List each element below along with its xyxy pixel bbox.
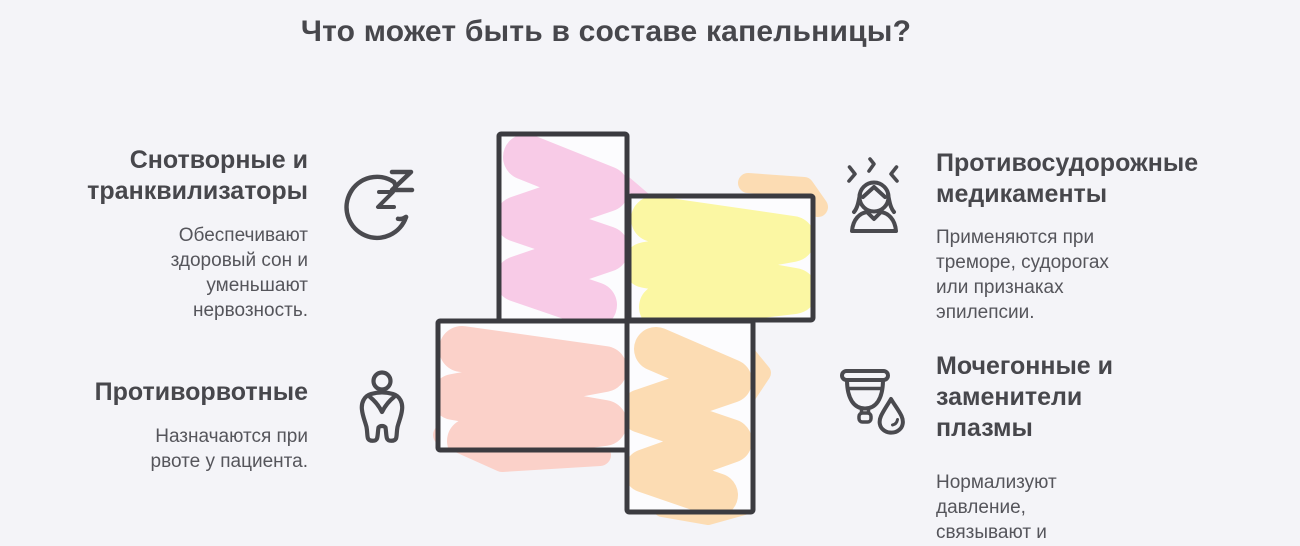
section-sedatives-description: Обеспечивают здоровый сон и уменьшают не…: [148, 223, 308, 323]
page-title: Что может быть в составе капельницы?: [0, 15, 1212, 49]
salmon-block: [438, 321, 629, 450]
section-antiemetics-title: Противорвотные: [58, 377, 308, 408]
tremor-person-icon: [841, 157, 903, 235]
section-anticonvulsants-title: Противосудорожные медикаменты: [936, 148, 1221, 210]
nausea-person-icon: [355, 369, 413, 442]
yellow-block: [629, 196, 813, 320]
section-diuretics-description: Нормализуют давление, связывают и выводя…: [936, 470, 1114, 546]
section-diuretics-title: Мочегонные и заменители плазмы: [936, 351, 1136, 444]
section-antiemetics-description: Назначаются при рвоте у пациента.: [143, 424, 308, 474]
iv-drip-cross-graphic: [410, 103, 830, 523]
infographic-canvas: Что может быть в составе капельницы? Сно…: [0, 0, 1300, 546]
pink-block: [499, 134, 627, 321]
peach-block: [627, 321, 753, 512]
cup-drop-icon: [839, 363, 907, 435]
section-sedatives-title: Снотворные и транквилизаторы: [58, 145, 308, 207]
section-anticonvulsants-description: Применяются при треморе, судорогах или п…: [936, 225, 1121, 325]
